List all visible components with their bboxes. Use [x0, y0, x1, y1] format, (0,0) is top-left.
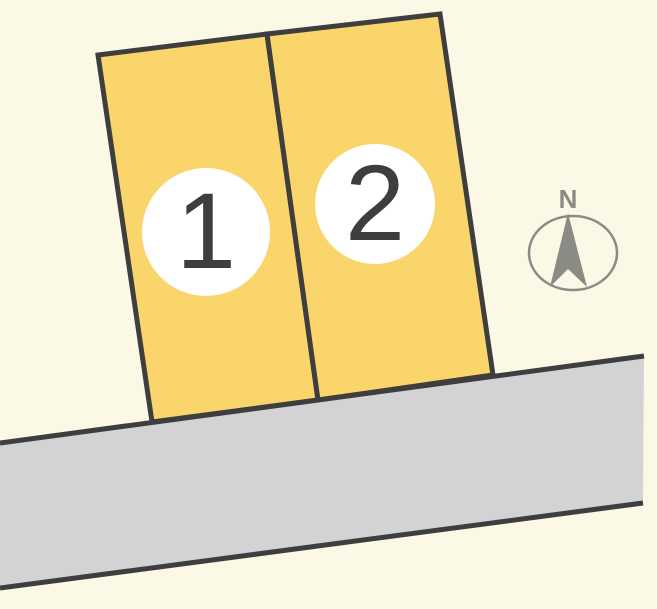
lot-1-number: 1 — [176, 170, 236, 291]
compass-north-label: N — [559, 184, 578, 214]
lot-1-badge[interactable]: 1 — [142, 168, 270, 296]
lot-2-number: 2 — [345, 142, 405, 263]
site-plan-canvas: 1 2 N — [0, 0, 657, 609]
